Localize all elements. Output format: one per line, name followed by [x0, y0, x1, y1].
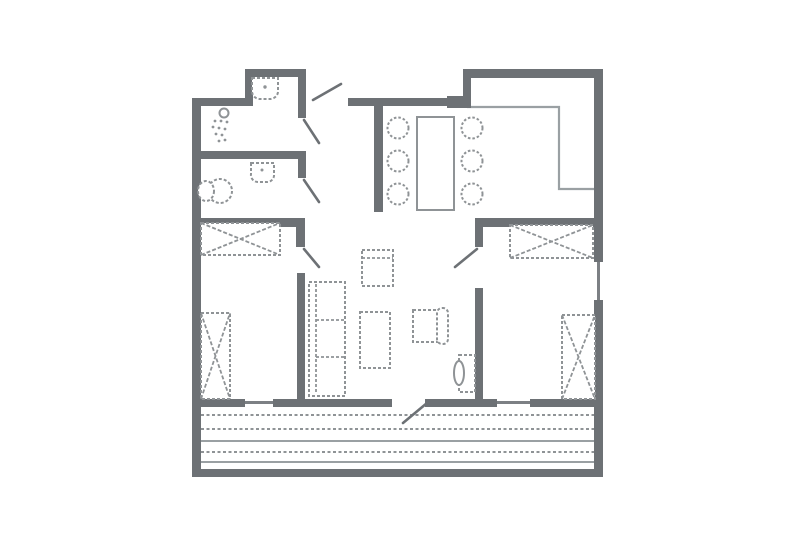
shower-head-icon [220, 109, 229, 118]
wall-bath-right-upper [298, 69, 306, 118]
wall-top-left [192, 98, 248, 106]
shower-spray-dot [215, 133, 218, 136]
shower-spray-dot [224, 128, 227, 131]
shower-spray-dot [218, 127, 221, 130]
armchair-east-backrest [437, 308, 448, 344]
wall-hall-top [348, 98, 448, 106]
wall-deck-bottom [192, 469, 603, 477]
armchair-east-seat [413, 310, 440, 342]
dining-chair [462, 151, 483, 172]
wall-shower-bottom [192, 151, 306, 159]
door-bedroom1 [304, 249, 319, 267]
shower-spray-dot [221, 134, 224, 137]
shower-spray-dot [224, 139, 227, 142]
tv-screen [454, 361, 464, 385]
wall-bottom-seg2 [273, 399, 392, 407]
dining-chair [388, 151, 409, 172]
wall-kitchen-top [463, 69, 603, 78]
shower-spray-dot [218, 140, 221, 143]
window-right-wall [597, 262, 600, 300]
dining-chair [462, 118, 483, 139]
door-deck [403, 403, 427, 423]
door-shower-room [304, 120, 319, 143]
window-bottom-left [245, 401, 273, 404]
wc-sink-drain [261, 169, 264, 172]
shower-spray-dot [214, 120, 217, 123]
armchair-north [362, 250, 393, 286]
wall-kitchen-left-stub [463, 69, 471, 108]
wall-exterior-right-upper [594, 69, 603, 262]
dining-chair [388, 184, 409, 205]
sofa [309, 282, 345, 396]
door-wc [304, 180, 319, 202]
wc-sink [251, 163, 274, 182]
shower-spray-dot [212, 126, 215, 129]
shower-spray-dot [226, 121, 229, 124]
dining-chair [388, 118, 409, 139]
wall-bottom-seg4 [530, 399, 603, 407]
wall-bottom-seg3 [425, 399, 497, 407]
floor-plan-svg [0, 0, 805, 555]
window-bottom-right [497, 401, 530, 404]
door-entry [313, 84, 341, 100]
wall-hall-dining [374, 98, 383, 212]
coffee-table [360, 312, 390, 368]
floor-plan-canvas [0, 0, 805, 555]
kitchen-counter-edge [467, 107, 594, 189]
wall-bath-nook-top [245, 69, 306, 77]
door-bedroom2 [455, 249, 477, 267]
wall-bottom-seg1 [192, 399, 245, 407]
dining-chair [462, 184, 483, 205]
shower-spray-dot [220, 120, 223, 123]
dining-table [417, 117, 454, 210]
wall-bedroom1-right-stub [296, 218, 305, 247]
wall-bedroom2-left [475, 288, 483, 405]
shower-room-sink-drain [263, 85, 266, 88]
wall-wc-right-stub [298, 151, 306, 178]
toilet-tank [198, 181, 214, 201]
wall-living-west [297, 273, 305, 405]
wall-bedroom2-left-stub [475, 218, 483, 247]
